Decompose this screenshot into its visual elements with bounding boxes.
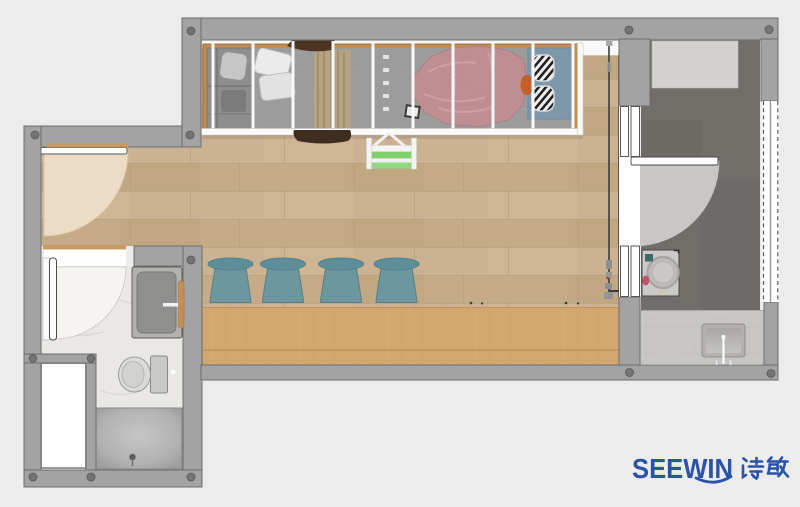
svg-text:SEEWIN: SEEWIN [632, 453, 733, 484]
